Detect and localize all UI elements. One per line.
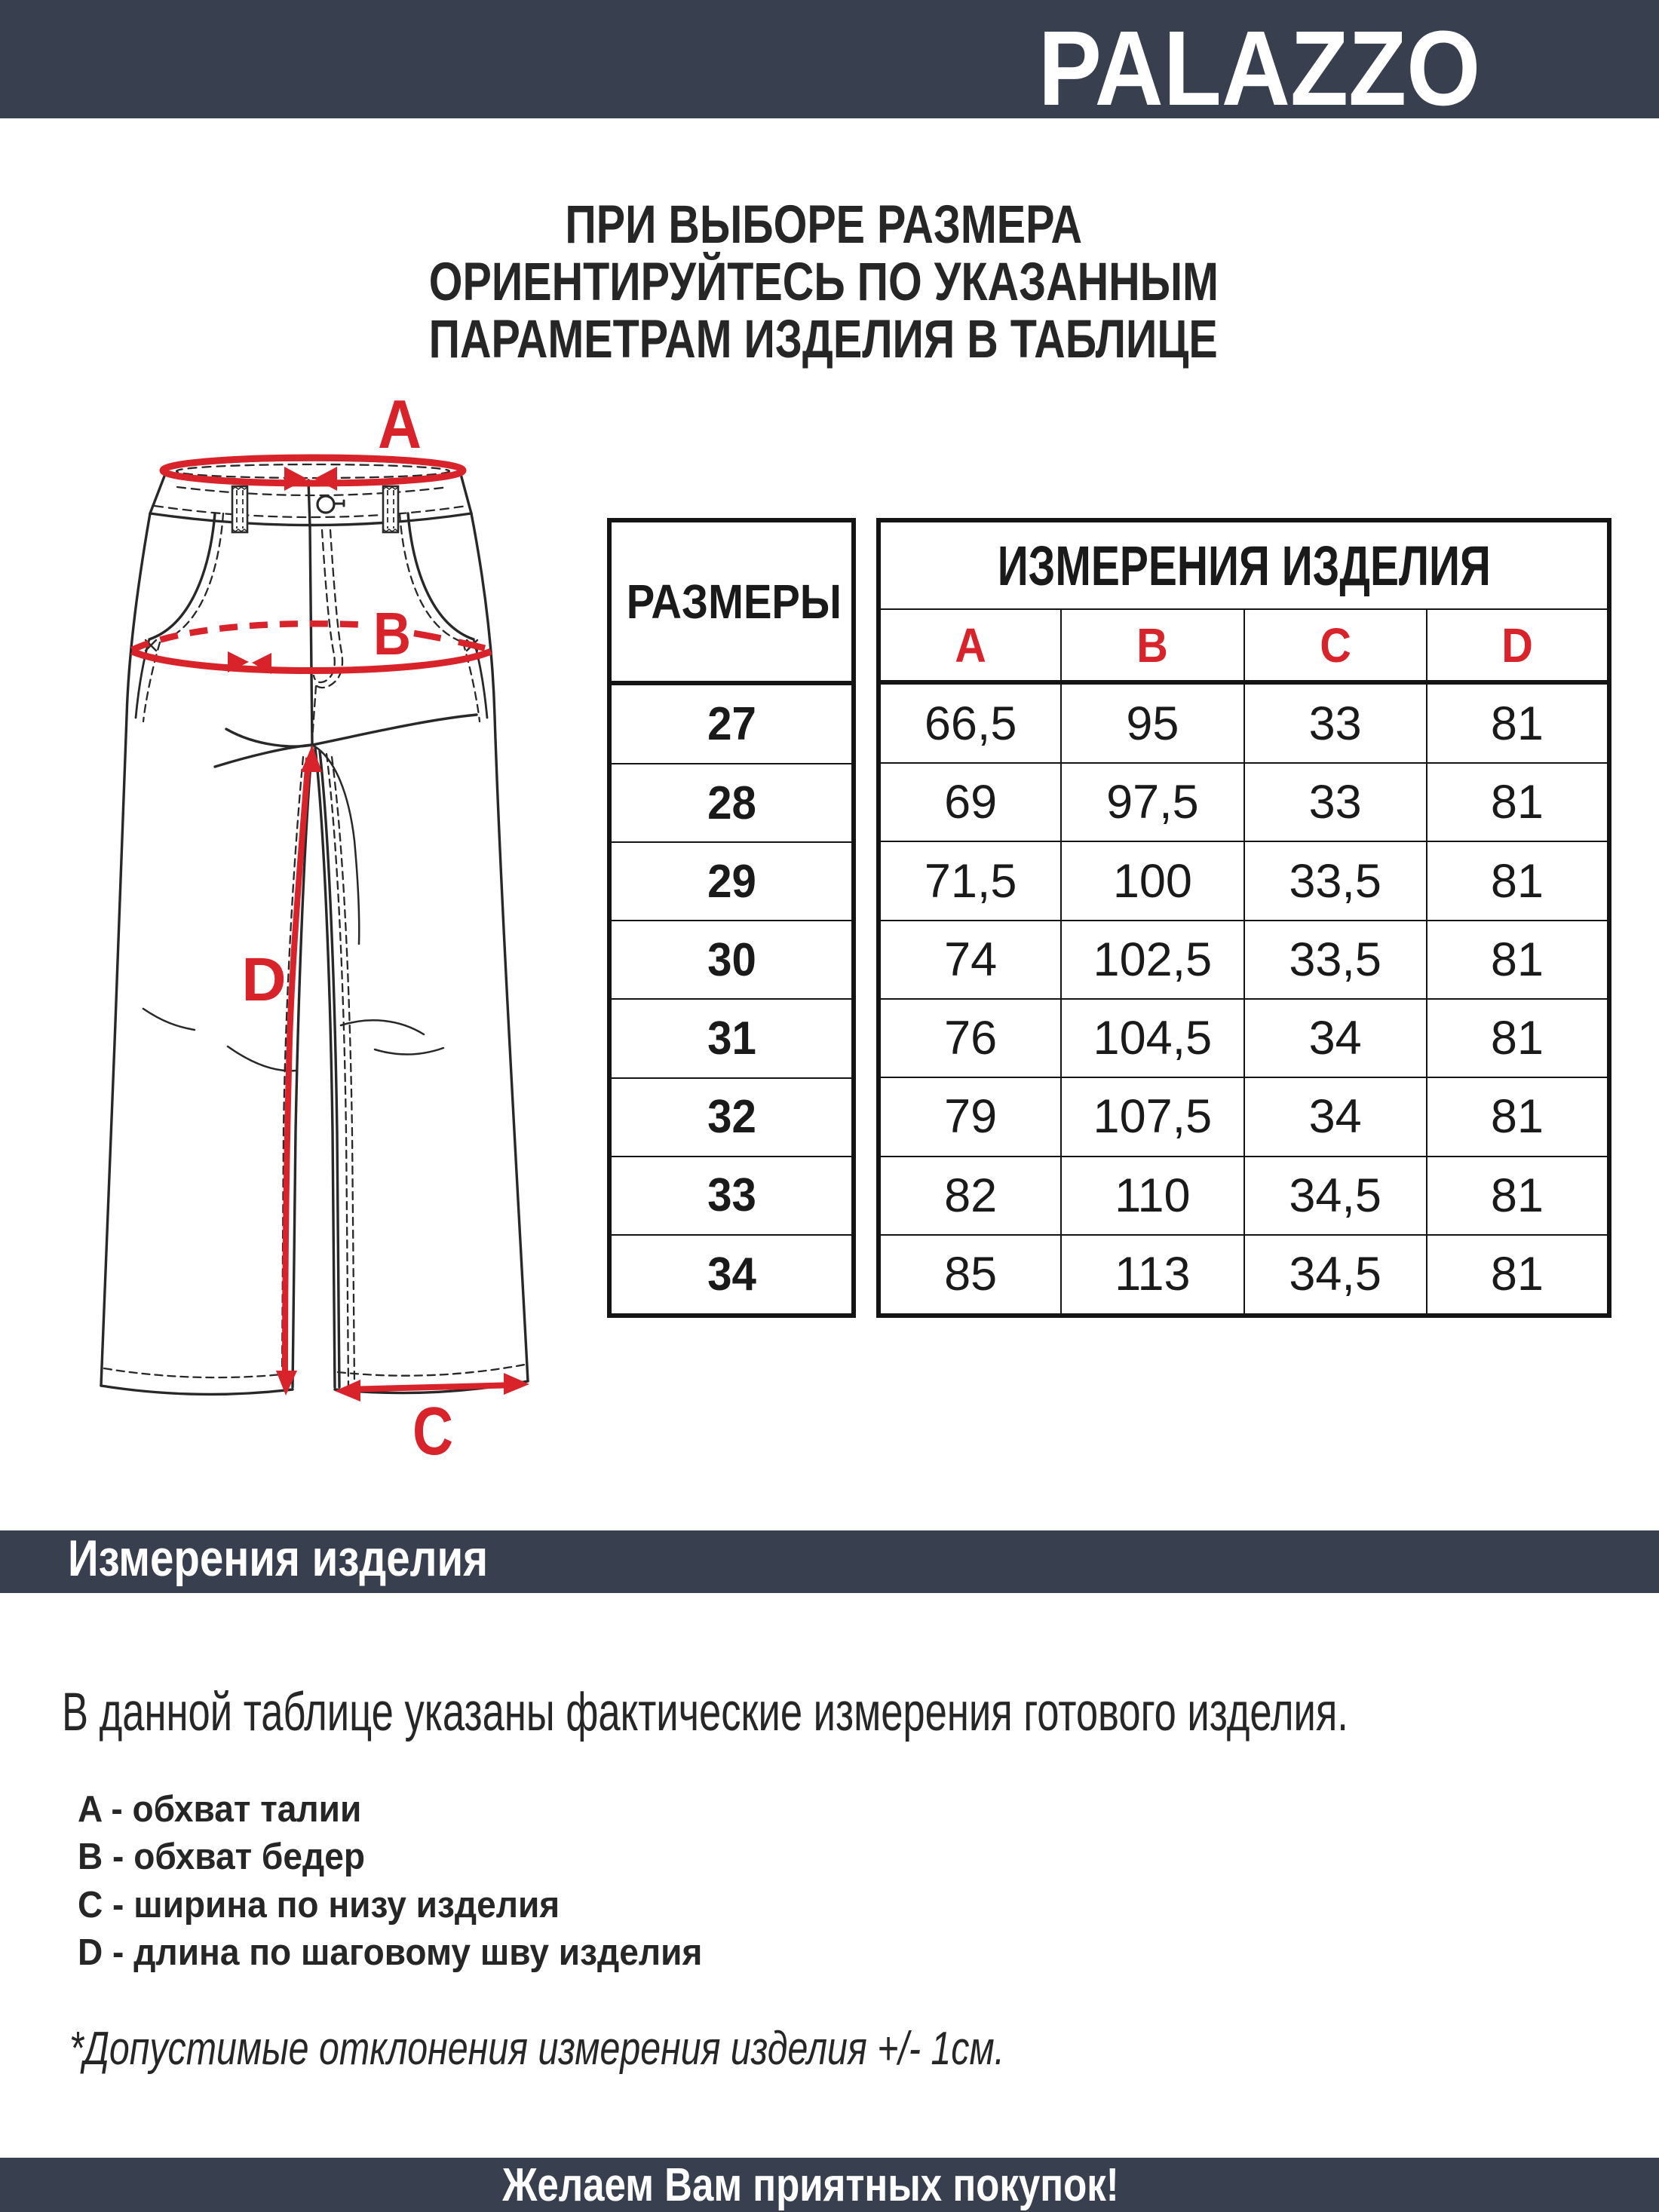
svg-text:C: C (412, 1394, 453, 1469)
svg-text:A: A (378, 387, 422, 463)
svg-text:B: B (373, 600, 411, 667)
svg-text:D: D (241, 945, 286, 1014)
